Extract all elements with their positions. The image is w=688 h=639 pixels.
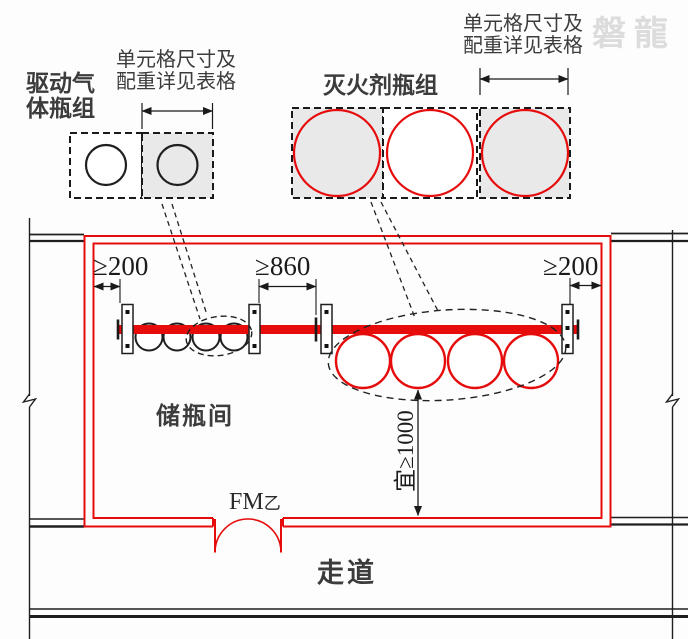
corridor-label: 走道 (317, 551, 377, 590)
agent-group-label: 灭火剂瓶组 (323, 66, 438, 100)
agent-note: 单元格尺寸及 配重详见表格 (450, 13, 596, 57)
leader-line (381, 202, 438, 311)
bottle-room-label: 储瓶间 (156, 396, 234, 431)
leader-line (162, 204, 200, 319)
door-label-suffix: 乙 (264, 494, 281, 513)
floor-plan-canvas: 磐龍 驱动气 体瓶组 单元格尺寸及 配重详见表格 灭火剂瓶组 单元格尺寸及 配重… (0, 0, 688, 639)
front-clearance-dimension: 宜≥1000 (386, 385, 412, 517)
right-clearance-dimension: ≥200 (543, 251, 598, 282)
mounting-bracket (562, 305, 573, 354)
mounting-bracket (321, 305, 332, 354)
door-label-code: FM (229, 489, 264, 515)
middle-clearance-dimension: ≥860 (255, 251, 310, 282)
watermark: 磐龍 (592, 6, 688, 55)
door-label: FM乙 (229, 489, 281, 516)
agent-bottles (336, 334, 558, 388)
driving-gas-note: 单元格尺寸及 配重详见表格 (106, 49, 246, 93)
left-clearance-dimension: ≥200 (93, 251, 148, 282)
leader-line (172, 204, 207, 315)
leader-line (371, 202, 415, 318)
mounting-bracket (122, 305, 133, 354)
driving-gas-group-label: 驱动气 体瓶组 (26, 71, 95, 121)
door-swing (215, 519, 281, 553)
